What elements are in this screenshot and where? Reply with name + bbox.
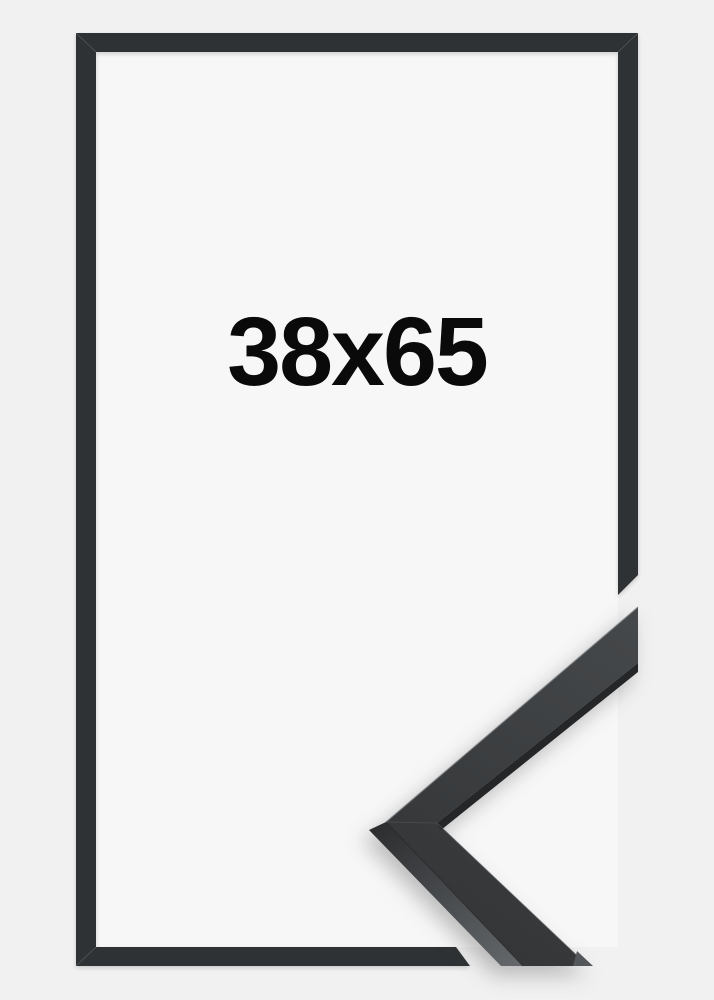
frame-left-border	[76, 33, 96, 966]
frame-bottom-border-cut	[76, 947, 470, 966]
size-label: 38x65	[0, 303, 714, 400]
frame-top-border	[76, 33, 638, 52]
product-image: 38x65	[0, 0, 714, 1000]
inner-background	[96, 52, 618, 947]
frame-illustration	[0, 0, 714, 1000]
